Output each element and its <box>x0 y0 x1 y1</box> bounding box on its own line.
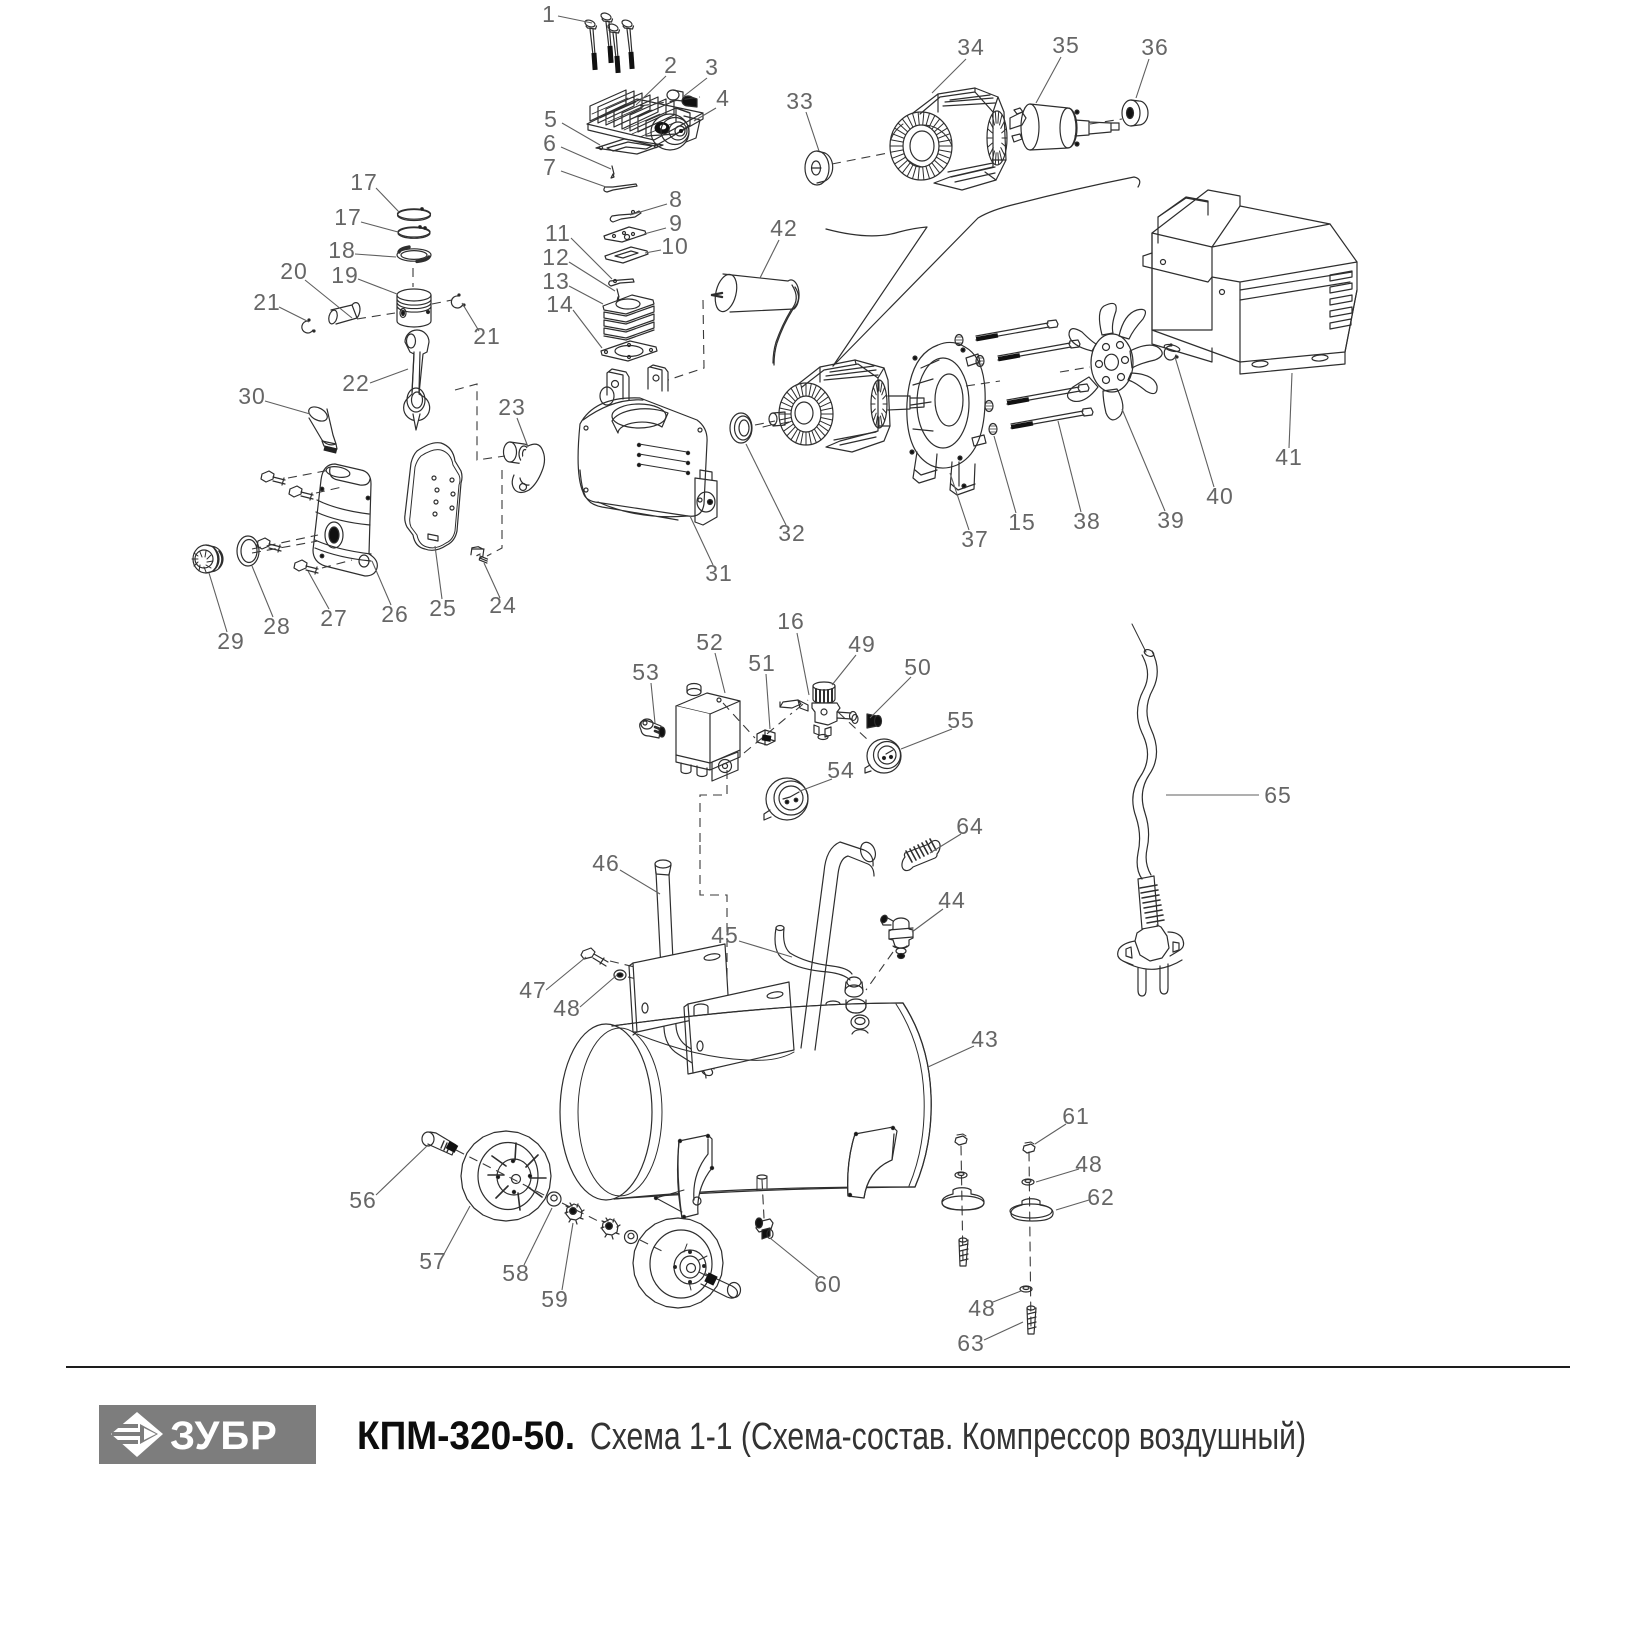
svg-text:40: 40 <box>1206 483 1234 509</box>
svg-text:42: 42 <box>770 215 798 241</box>
svg-text:27: 27 <box>320 605 348 631</box>
svg-text:17: 17 <box>334 204 362 230</box>
svg-text:10: 10 <box>661 233 689 259</box>
svg-text:58: 58 <box>502 1260 530 1286</box>
svg-text:63: 63 <box>957 1330 985 1356</box>
svg-text:36: 36 <box>1141 34 1169 60</box>
svg-text:31: 31 <box>705 560 733 586</box>
svg-text:52: 52 <box>696 629 724 655</box>
svg-text:24: 24 <box>489 592 517 618</box>
svg-text:20: 20 <box>280 258 308 284</box>
svg-text:22: 22 <box>342 370 370 396</box>
svg-text:15: 15 <box>1008 509 1036 535</box>
svg-text:48: 48 <box>1075 1151 1103 1177</box>
svg-text:2: 2 <box>664 52 678 78</box>
svg-text:50: 50 <box>904 654 932 680</box>
svg-text:37: 37 <box>961 526 989 552</box>
svg-text:26: 26 <box>381 601 409 627</box>
svg-text:14: 14 <box>546 291 574 317</box>
svg-text:47: 47 <box>519 977 547 1003</box>
svg-text:КПМ-320-50.: КПМ-320-50. <box>357 1414 575 1458</box>
svg-text:18: 18 <box>328 237 356 263</box>
svg-text:17: 17 <box>350 169 378 195</box>
svg-text:11: 11 <box>545 220 571 246</box>
svg-text:29: 29 <box>217 628 245 654</box>
svg-text:45: 45 <box>711 922 739 948</box>
svg-text:4: 4 <box>716 85 730 111</box>
svg-text:12: 12 <box>542 244 570 270</box>
svg-text:5: 5 <box>544 106 558 132</box>
svg-text:32: 32 <box>778 520 806 546</box>
svg-text:61: 61 <box>1062 1103 1090 1129</box>
svg-text:Схема 1-1 (Схема-состав. Компр: Схема 1-1 (Схема-состав. Компрессор возд… <box>590 1416 1306 1458</box>
svg-text:46: 46 <box>592 850 620 876</box>
svg-text:49: 49 <box>848 631 876 657</box>
svg-text:33: 33 <box>786 88 814 114</box>
svg-text:51: 51 <box>748 650 776 676</box>
svg-text:21: 21 <box>253 289 281 315</box>
svg-text:48: 48 <box>553 995 581 1021</box>
svg-text:65: 65 <box>1264 782 1292 808</box>
svg-text:8: 8 <box>669 186 683 212</box>
svg-text:35: 35 <box>1052 32 1080 58</box>
svg-text:30: 30 <box>238 383 266 409</box>
svg-text:56: 56 <box>349 1187 377 1213</box>
svg-text:60: 60 <box>814 1271 842 1297</box>
svg-text:48: 48 <box>968 1295 996 1321</box>
svg-text:62: 62 <box>1087 1184 1115 1210</box>
svg-text:43: 43 <box>971 1026 999 1052</box>
svg-text:34: 34 <box>957 34 985 60</box>
svg-text:7: 7 <box>543 154 557 180</box>
svg-text:28: 28 <box>263 613 291 639</box>
svg-text:21: 21 <box>473 323 501 349</box>
svg-text:64: 64 <box>956 813 984 839</box>
svg-text:ЗУБР: ЗУБР <box>170 1414 278 1458</box>
svg-text:16: 16 <box>777 608 805 634</box>
svg-text:23: 23 <box>498 394 526 420</box>
svg-text:39: 39 <box>1157 507 1185 533</box>
svg-text:3: 3 <box>705 54 719 80</box>
svg-text:38: 38 <box>1073 508 1101 534</box>
svg-text:6: 6 <box>543 130 557 156</box>
svg-text:1: 1 <box>542 1 556 27</box>
svg-text:53: 53 <box>632 659 660 685</box>
svg-text:57: 57 <box>419 1248 447 1274</box>
svg-text:25: 25 <box>429 595 457 621</box>
svg-text:59: 59 <box>541 1286 569 1312</box>
svg-text:19: 19 <box>331 262 359 288</box>
